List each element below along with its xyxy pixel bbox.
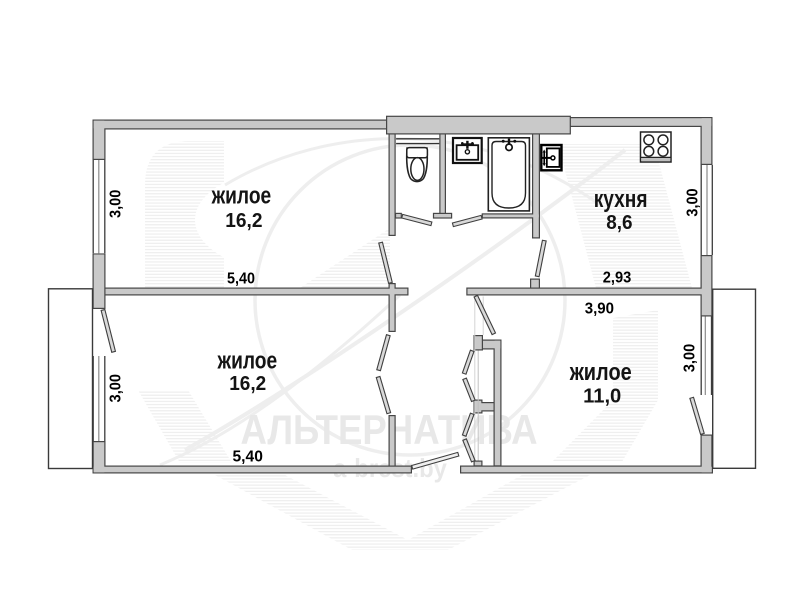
svg-text:16,2: 16,2 [225,210,262,232]
svg-text:3,00: 3,00 [107,374,124,403]
svg-text:3,90: 3,90 [585,300,615,317]
svg-text:жилое: жилое [211,183,271,209]
svg-text:5,40: 5,40 [233,448,264,465]
svg-text:16,2: 16,2 [229,373,266,395]
svg-text:жилое: жилое [217,348,277,374]
svg-text:3,00: 3,00 [684,188,701,216]
svg-text:8,6: 8,6 [606,212,632,234]
svg-text:3,00: 3,00 [108,189,125,218]
svg-text:5,40: 5,40 [227,270,255,287]
svg-text:3,00: 3,00 [682,343,699,372]
svg-text:11,0: 11,0 [583,386,621,408]
svg-text:2,93: 2,93 [603,270,632,287]
svg-text:жилое: жилое [569,360,632,386]
svg-text:кухня: кухня [594,187,648,213]
